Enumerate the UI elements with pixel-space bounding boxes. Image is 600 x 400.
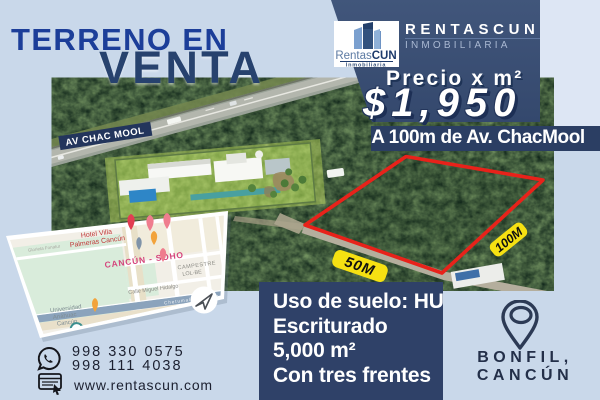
svg-text:Inmobiliaria: Inmobiliaria xyxy=(346,63,387,68)
svg-text:RentasCUN: RentasCUN xyxy=(335,50,396,62)
